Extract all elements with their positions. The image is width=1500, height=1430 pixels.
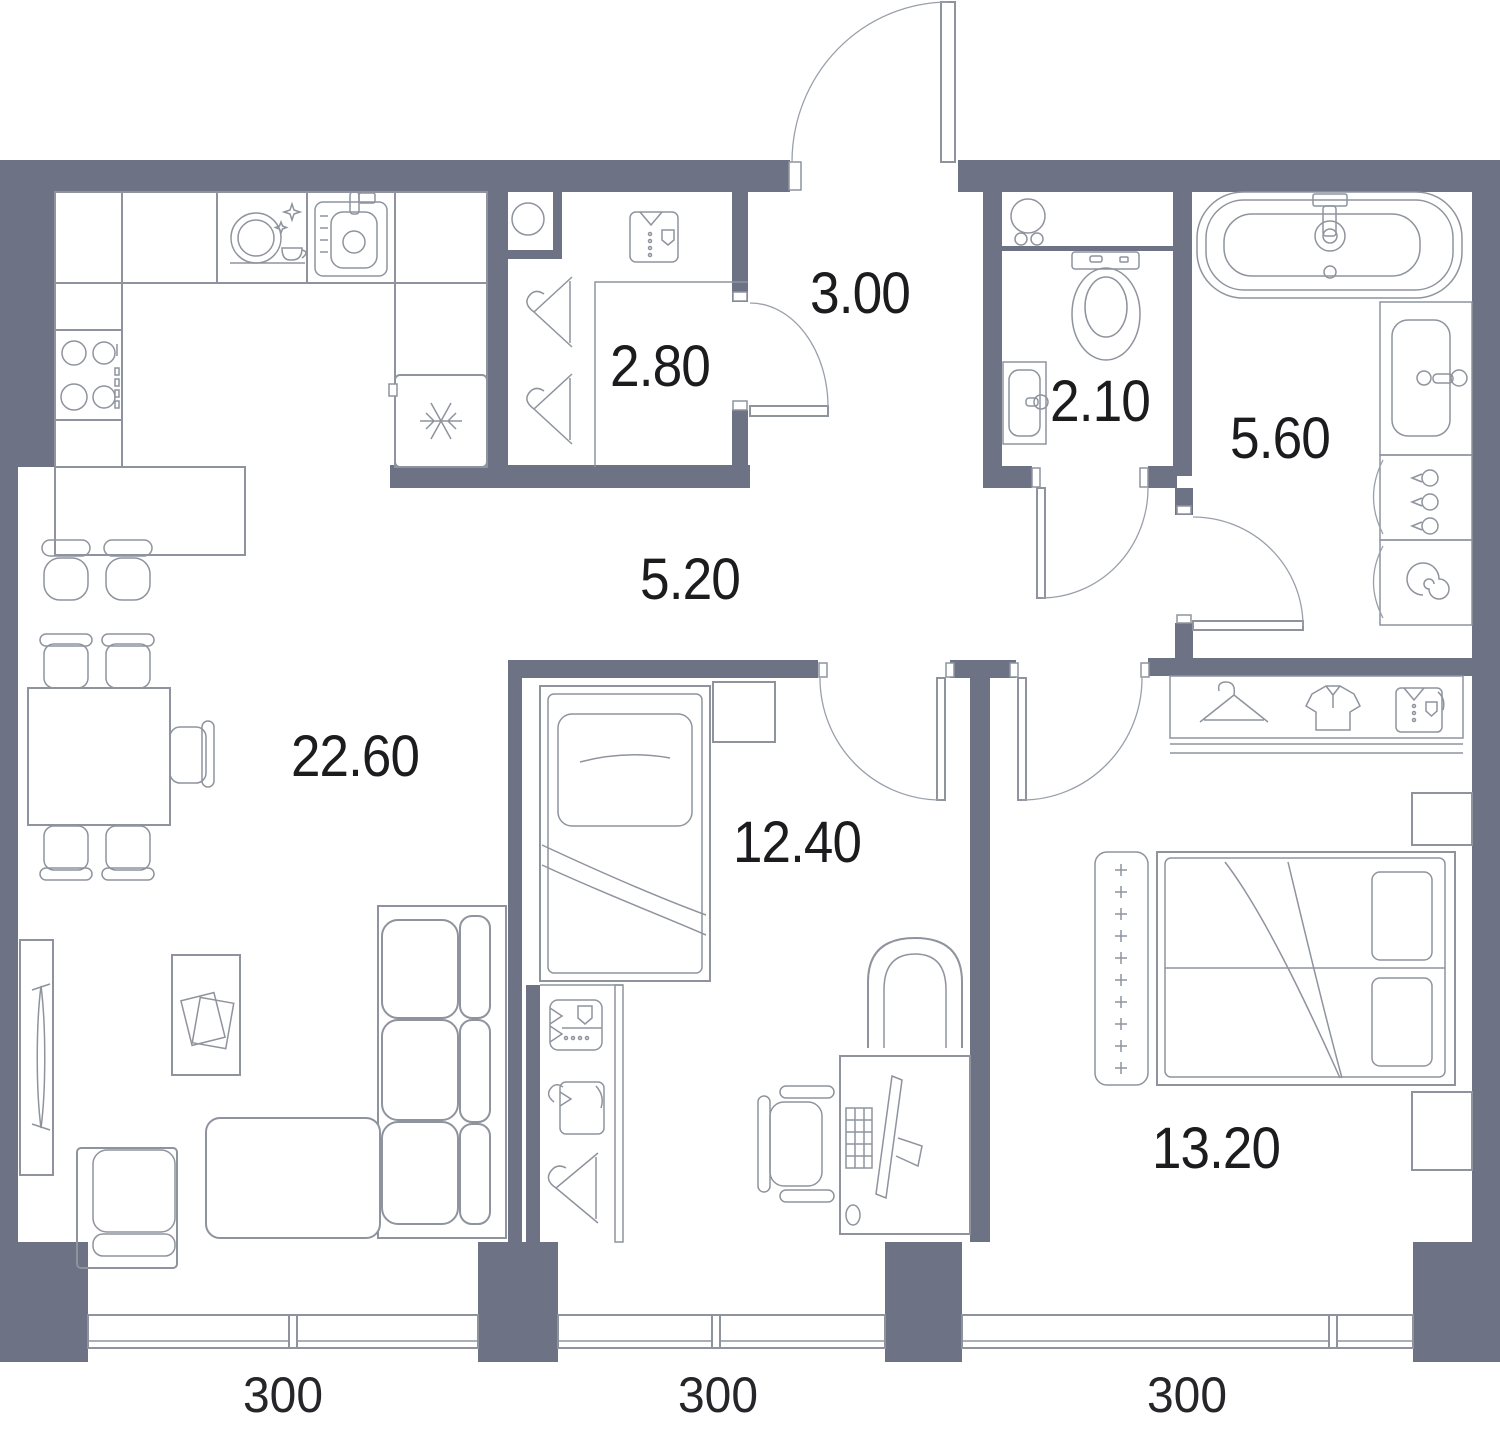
single-bed — [540, 686, 710, 981]
hanger-icon — [1200, 682, 1268, 722]
area-label-wc: 2.10 — [1050, 369, 1150, 434]
area-label-bedroom-large: 13.20 — [1152, 1116, 1280, 1181]
bedroom-small — [540, 682, 970, 1242]
dining-table — [28, 688, 170, 825]
hanging-shirt-icon — [549, 1082, 604, 1134]
mouse-icon — [846, 1205, 860, 1225]
wall-pier — [0, 1242, 88, 1362]
fridge-icon — [389, 375, 487, 467]
area-label-hallway: 5.20 — [640, 547, 740, 612]
wall — [508, 662, 522, 1242]
nightstand — [1412, 1092, 1472, 1170]
area-label-wardrobe: 2.80 — [610, 334, 710, 399]
bathtub-icon — [1197, 192, 1462, 298]
dimension-label: 300 — [243, 1367, 323, 1423]
nightstand — [713, 682, 775, 742]
wall-pier — [478, 1242, 558, 1362]
closet-back-panel — [526, 985, 540, 1242]
folded-shirt-icon — [550, 1000, 602, 1050]
bathroom-door — [1177, 506, 1303, 630]
wall — [390, 465, 750, 488]
dimension-labels: 300 300 300 — [243, 1367, 1227, 1423]
windows — [88, 1315, 1413, 1348]
bar-stool — [42, 540, 90, 600]
hanger-icon — [548, 1153, 598, 1223]
wall — [958, 160, 1500, 192]
keyboard-icon — [846, 1108, 872, 1168]
wall — [505, 250, 562, 259]
bench — [1095, 852, 1148, 1085]
wall — [1002, 466, 1032, 488]
dress-shirt-icon — [1396, 688, 1444, 732]
wall — [0, 160, 790, 192]
kitchen — [55, 192, 487, 467]
area-label-bathroom: 5.60 — [1230, 406, 1330, 471]
washing-machine-icon — [1374, 540, 1473, 625]
bedroom-large — [1095, 676, 1472, 1170]
boiler-icon — [1011, 199, 1045, 245]
bathroom-sink-icon — [1380, 302, 1472, 455]
bar-stool — [104, 540, 152, 600]
desk — [840, 1056, 970, 1234]
wall — [1148, 658, 1500, 676]
vent-duct-icon — [512, 203, 544, 235]
entrance-door — [789, 2, 955, 190]
folded-shirt-icon — [630, 212, 678, 262]
washbasin-icon — [1003, 362, 1048, 444]
wall — [732, 192, 748, 302]
sofa-chaise — [206, 1118, 380, 1238]
wall — [1472, 192, 1500, 1242]
wall — [487, 192, 508, 467]
wall — [1148, 466, 1177, 488]
hanger-icon — [527, 277, 572, 347]
doors — [733, 2, 1303, 800]
wall — [0, 192, 55, 467]
sofa — [206, 906, 506, 1238]
nightstand — [1412, 793, 1472, 845]
polo-shirt-icon — [1306, 686, 1360, 730]
wall — [1175, 623, 1193, 658]
floor-plan: 2.80 3.00 2.10 5.60 5.20 22.60 12.40 13.… — [0, 0, 1500, 1430]
wall — [0, 467, 18, 1242]
hanger-icon — [527, 374, 572, 444]
tv-console — [20, 940, 53, 1175]
window — [962, 1315, 1413, 1348]
dimension-label: 300 — [1147, 1367, 1227, 1423]
closet — [540, 985, 623, 1242]
floor-plan-svg: 2.80 3.00 2.10 5.60 5.20 22.60 12.40 13.… — [0, 0, 1500, 1430]
dining-set — [28, 634, 214, 880]
wall — [950, 660, 1016, 678]
monitor-icon — [876, 1076, 922, 1198]
dimension-label: 300 — [678, 1367, 758, 1423]
tv-icon — [32, 984, 50, 1130]
coffee-table — [172, 955, 240, 1075]
lounge-chair — [868, 938, 962, 1048]
stove-icon — [55, 330, 122, 420]
wall — [983, 192, 1002, 488]
closet — [1170, 676, 1463, 753]
wall — [970, 678, 990, 1242]
window — [558, 1315, 885, 1348]
wall — [508, 660, 818, 678]
wall — [553, 192, 562, 252]
wc-door — [1032, 468, 1148, 598]
wall — [732, 410, 748, 488]
kitchen-sink-icon — [315, 192, 387, 276]
bedroom-large-door — [1010, 663, 1149, 800]
area-label-entry: 3.00 — [810, 261, 910, 326]
dryer-icon — [1374, 455, 1473, 540]
wc-partition — [1002, 246, 1173, 251]
toilet-icon — [1072, 252, 1140, 360]
armchair — [77, 1148, 177, 1268]
area-label-living: 22.60 — [291, 724, 419, 789]
double-bed — [1157, 852, 1455, 1085]
bedroom-small-door — [819, 663, 954, 800]
dish-dryer-icon — [230, 204, 306, 263]
window — [88, 1315, 478, 1348]
wall — [1173, 192, 1192, 476]
office-chair — [758, 1086, 834, 1202]
wall-pier — [885, 1242, 962, 1362]
wall-pier — [1413, 1242, 1500, 1362]
living-room — [20, 467, 506, 1268]
area-label-bedroom-small: 12.40 — [733, 810, 861, 875]
